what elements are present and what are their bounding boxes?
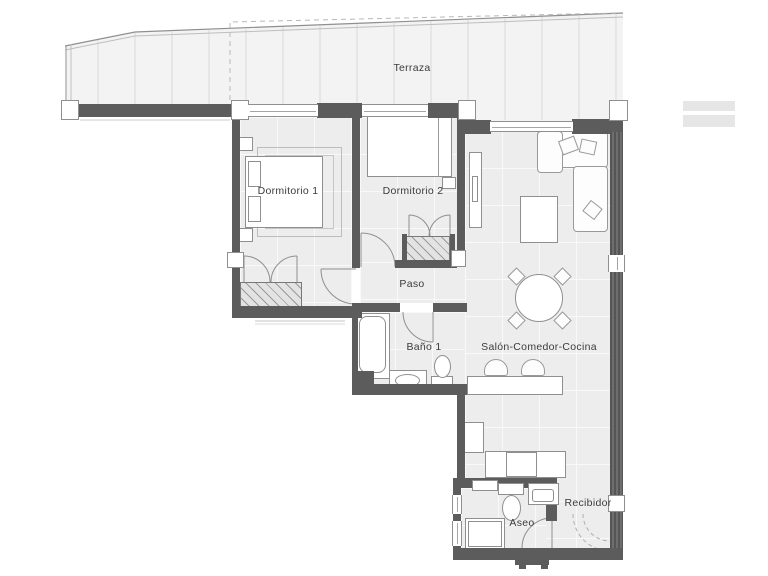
aseo-toilet-tank	[498, 483, 524, 495]
floor-plan: Terraza Dormitorio 1 Dormitorio 2 Paso B…	[0, 0, 768, 576]
dormitorio1-pillow	[248, 196, 261, 222]
label-dormitorio1: Dormitorio 1	[258, 185, 319, 197]
bar-stool	[521, 359, 545, 376]
entrance-door-arc	[573, 514, 610, 551]
tv-unit-inner	[472, 176, 478, 202]
linework-layer	[0, 0, 768, 576]
kitchen-sink-unit	[464, 422, 484, 453]
label-paso: Paso	[399, 278, 424, 290]
coffee-table	[520, 196, 558, 243]
wall-south-right	[547, 548, 623, 560]
wall-wardrobe2-left	[402, 234, 407, 262]
kitchen-peninsula-counter	[467, 376, 563, 395]
dining-table	[515, 274, 563, 322]
bar-stool	[484, 359, 508, 376]
window-dormitorio2	[362, 104, 428, 117]
aseo-shelf	[472, 480, 498, 491]
wall-bedroom-top-b	[428, 103, 459, 118]
wall-bedroom-top-a	[317, 103, 362, 118]
pillar-paso-salon	[451, 250, 466, 267]
dormitorio2-nightstand	[442, 177, 456, 189]
bathtub-inner	[359, 316, 386, 373]
window-aseo-2	[452, 521, 462, 546]
window-salon-north	[490, 121, 573, 132]
wall-bano-top-a	[352, 303, 400, 312]
window-salon-east	[608, 255, 625, 272]
dormitorio1-pillow	[248, 161, 261, 187]
label-salon: Salón-Comedor-Cocina	[481, 341, 597, 353]
window-aseo-1	[452, 495, 462, 514]
bano1-toilet-bowl	[434, 355, 451, 378]
dormitorio2-bed-headline	[438, 114, 439, 177]
label-terraza: Terraza	[393, 62, 430, 74]
dormitorio2-wardrobe	[406, 236, 450, 262]
pillar-terrace-left	[61, 100, 79, 120]
wall-east-2	[610, 272, 623, 495]
label-recibidor: Recibidor	[564, 497, 611, 509]
pillar-corner-ne	[609, 100, 628, 121]
wall-east-1	[610, 132, 623, 255]
wall-bano-bottom	[352, 384, 467, 395]
dormitorio2-bed	[367, 114, 452, 177]
label-aseo: Aseo	[509, 517, 534, 529]
label-bano1: Baño 1	[406, 341, 441, 353]
pillar-west-wall	[227, 252, 244, 268]
sofa-pillow	[579, 138, 598, 155]
wall-kitchen-west	[457, 393, 465, 479]
wall-west-d1-upper	[232, 117, 240, 252]
shower-tray-inner	[468, 521, 502, 547]
wall-d2-east	[457, 118, 465, 250]
kitchen-hob	[506, 452, 537, 477]
sofa-chaise	[537, 131, 563, 173]
wall-terrace-parapet	[65, 104, 231, 117]
entrance-step	[515, 551, 549, 565]
window-dormitorio1	[248, 104, 318, 117]
wall-bano-top-b	[433, 303, 467, 312]
wall-bano-notch	[352, 371, 374, 385]
dormitorio1-wardrobe	[240, 282, 302, 308]
wall-d1-bottom	[232, 306, 362, 318]
label-dormitorio2: Dormitorio 2	[383, 185, 444, 197]
pillar-terrace-mid	[231, 100, 249, 120]
wall-d2-bottom-b	[400, 260, 457, 268]
pillar-terrace-right	[458, 100, 476, 120]
wall-east-3	[610, 512, 623, 550]
wall-salon-top-a	[464, 120, 491, 134]
aseo-washbasin	[532, 489, 554, 502]
wall-d1-d2-divider	[352, 117, 360, 268]
